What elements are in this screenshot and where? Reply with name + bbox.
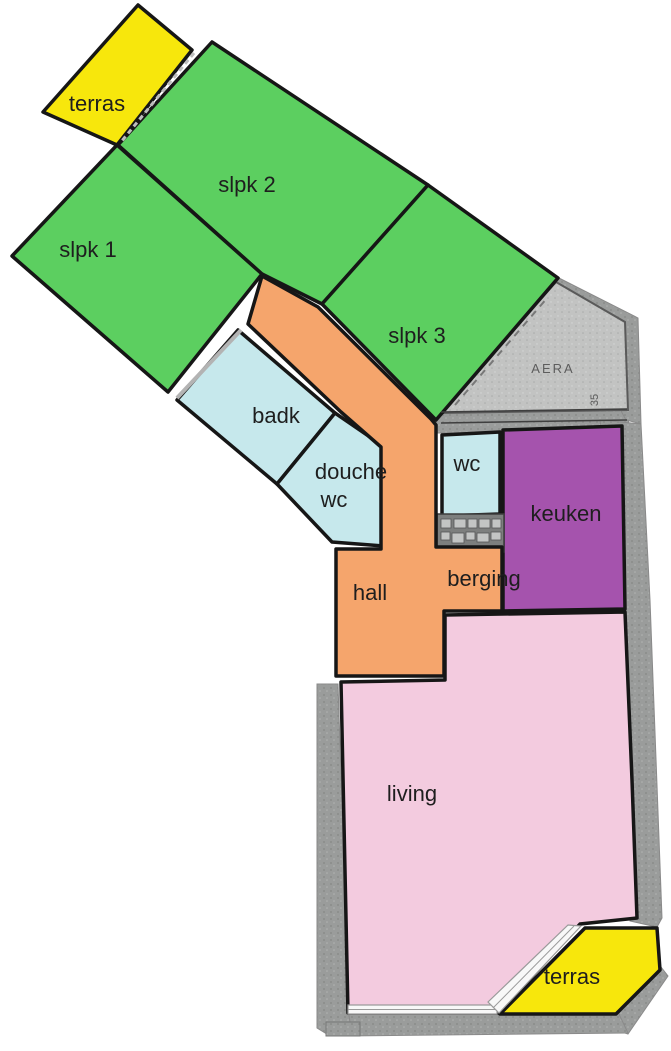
label-slpk3: slpk 3: [388, 323, 445, 348]
label-slpk1: slpk 1: [59, 237, 116, 262]
label-berging: berging: [447, 566, 520, 591]
floor-plan-svg: terras slpk 1 slpk 2 slpk 3 badk douche …: [0, 0, 671, 1051]
label-terras-bottom: terras: [544, 964, 600, 989]
floor-plan: terras slpk 1 slpk 2 slpk 3 badk douche …: [0, 0, 671, 1051]
label-living: living: [387, 781, 437, 806]
label-aera: AERA: [531, 361, 574, 376]
label-douche-wc: wc: [320, 487, 348, 512]
label-terras-top: terras: [69, 91, 125, 116]
label-hall: hall: [353, 580, 387, 605]
label-douche: douche: [315, 459, 387, 484]
label-badk: badk: [252, 403, 301, 428]
label-wc: wc: [453, 451, 481, 476]
label-aera-number: 35: [589, 394, 601, 406]
label-keuken: keuken: [531, 501, 602, 526]
wall-column-foot: [326, 1022, 360, 1036]
label-slpk2: slpk 2: [218, 172, 275, 197]
